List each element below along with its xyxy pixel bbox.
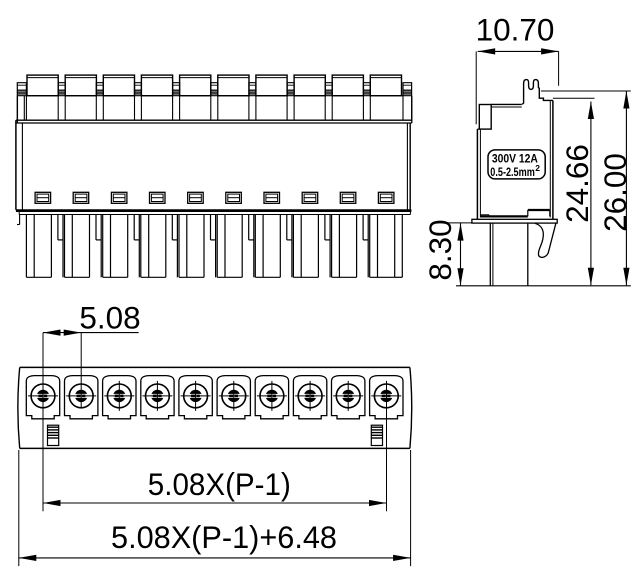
svg-text:300V 12A: 300V 12A (492, 153, 538, 165)
svg-text:5.08X(P-1): 5.08X(P-1) (148, 466, 291, 502)
svg-text:8.30: 8.30 (422, 219, 458, 280)
svg-text:5.08: 5.08 (79, 300, 140, 336)
svg-text:5.08X(P-1)+6.48: 5.08X(P-1)+6.48 (111, 519, 337, 555)
svg-text:26.00: 26.00 (597, 153, 633, 232)
svg-text:0.5-2.5mm: 0.5-2.5mm (490, 167, 535, 179)
svg-text:10.70: 10.70 (476, 11, 555, 47)
svg-text:24.66: 24.66 (559, 144, 595, 223)
svg-text:2: 2 (535, 163, 540, 173)
